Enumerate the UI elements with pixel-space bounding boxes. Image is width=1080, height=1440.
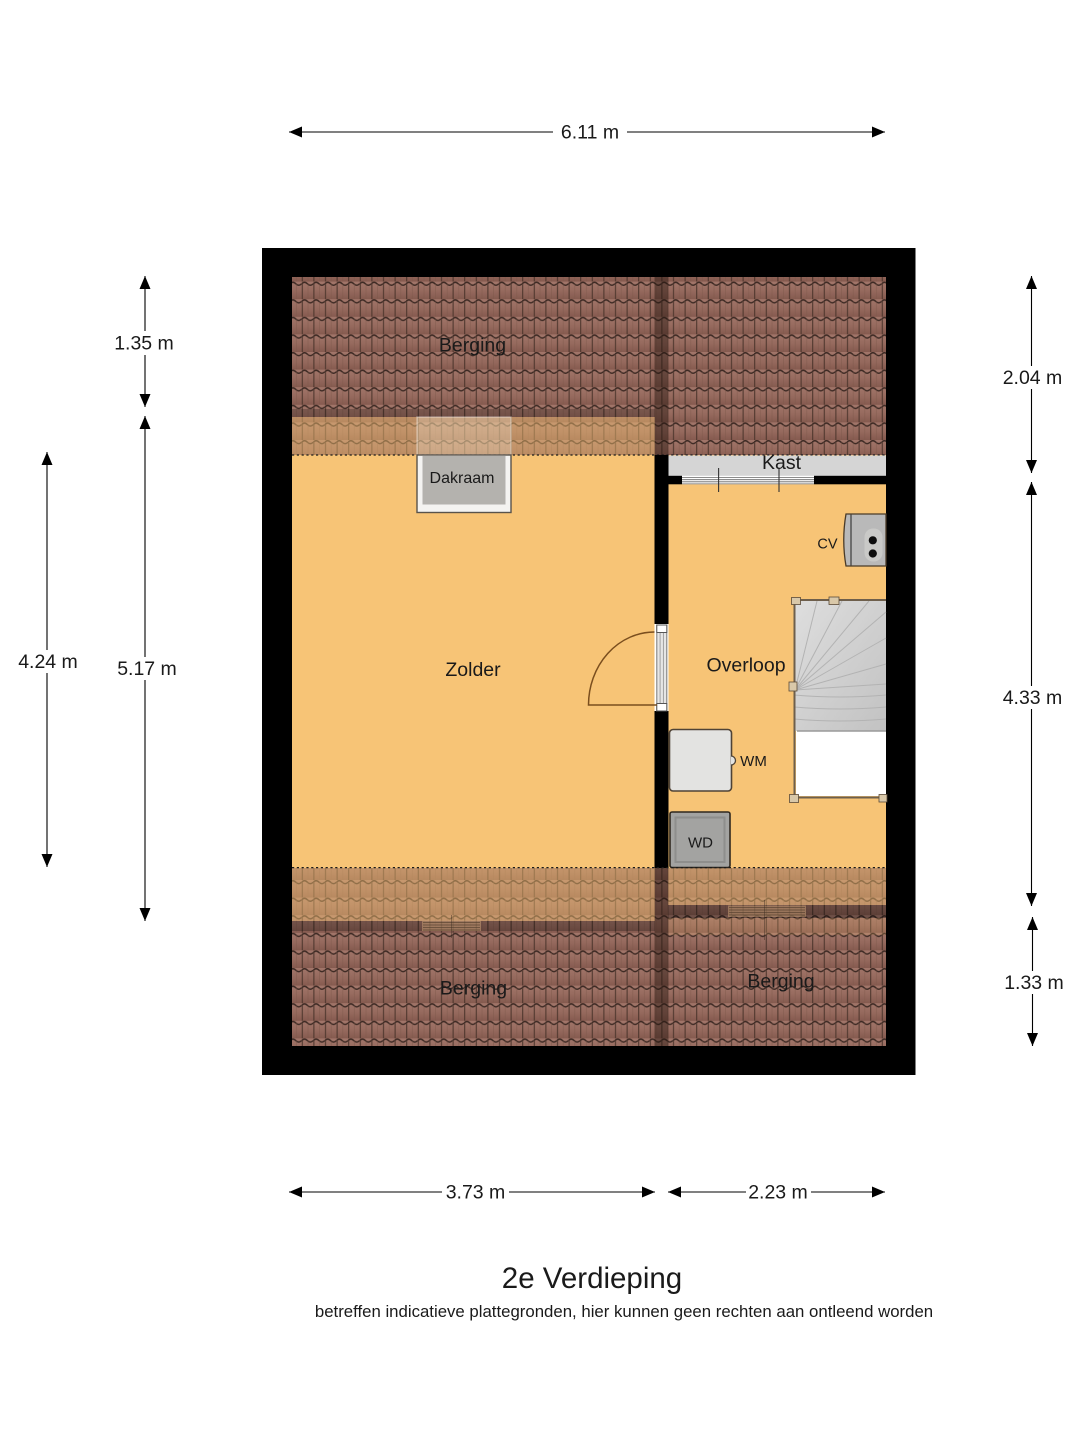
svg-text:4.24 m: 4.24 m [18,651,78,673]
svg-text:Zolder: Zolder [445,659,501,681]
svg-text:Kast: Kast [762,452,802,474]
svg-text:Berging: Berging [440,978,507,1000]
svg-text:2e Verdieping: 2e Verdieping [502,1262,682,1295]
svg-text:6.11 m: 6.11 m [561,122,619,144]
svg-text:betreffen indicatieve plattegr: betreffen indicatieve plattegronden, hie… [315,1302,933,1321]
svg-text:Berging: Berging [439,335,506,357]
svg-text:WD: WD [688,835,713,852]
svg-text:3.73 m: 3.73 m [446,1182,506,1204]
svg-text:2.23 m: 2.23 m [748,1182,808,1204]
svg-text:WM: WM [740,753,767,770]
svg-text:1.35 m: 1.35 m [114,333,174,355]
svg-text:5.17 m: 5.17 m [117,658,177,680]
svg-text:Berging: Berging [747,971,814,993]
svg-text:1.33 m: 1.33 m [1004,972,1064,994]
svg-text:4.33 m: 4.33 m [1003,687,1063,709]
svg-text:CV: CV [817,537,837,553]
svg-text:Dakraam: Dakraam [430,470,495,487]
svg-text:2.04 m: 2.04 m [1003,367,1063,389]
svg-text:Overloop: Overloop [706,655,785,677]
